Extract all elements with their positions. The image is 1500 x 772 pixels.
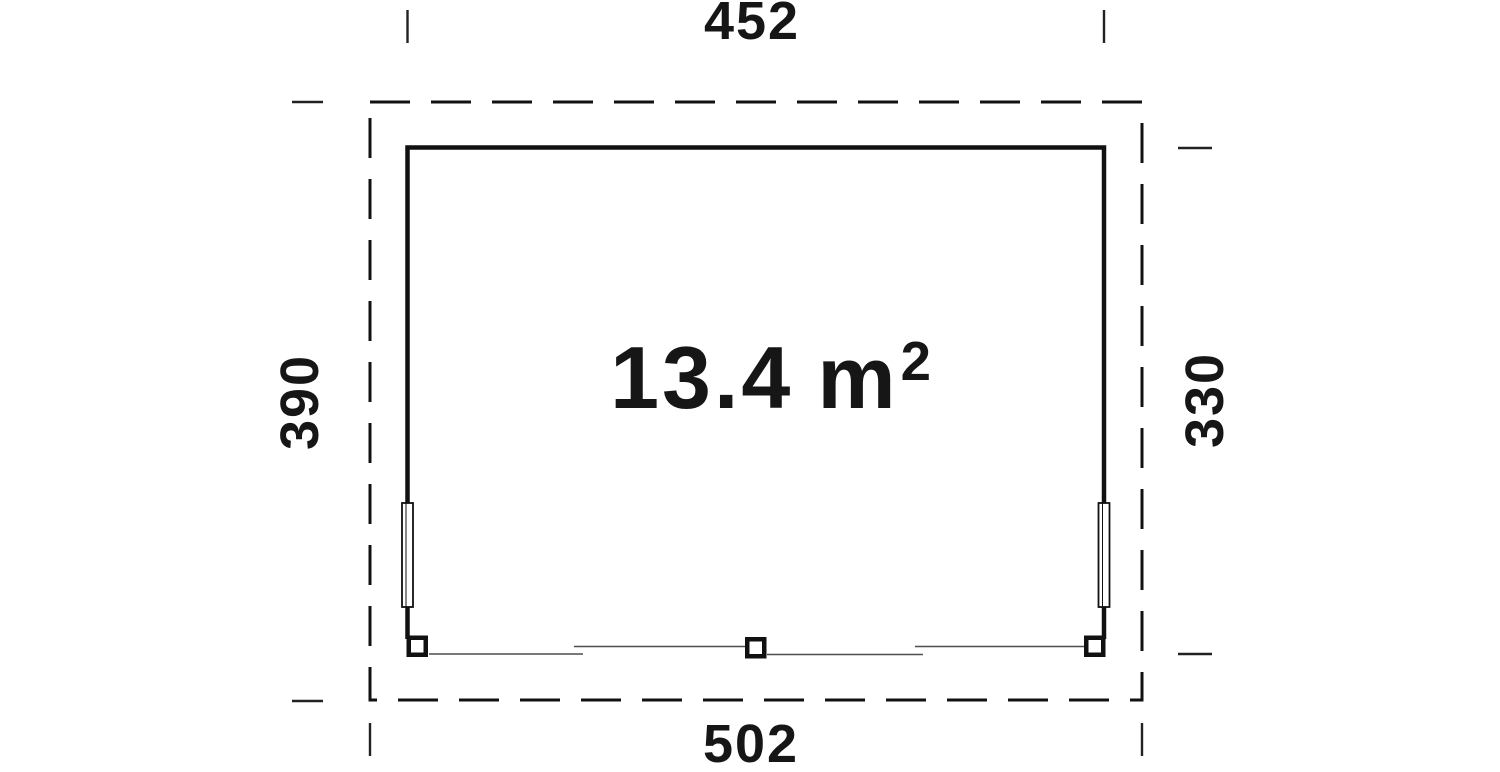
dimension-width-top: 452 — [704, 0, 800, 48]
area-unit: m — [817, 328, 898, 427]
dimension-width-bottom: 502 — [703, 717, 799, 771]
corner-post-right — [1086, 638, 1103, 655]
floor-plan-canvas: 452 502 390 330 13.4m2 — [0, 0, 1500, 772]
area-value: 13.4 — [610, 328, 793, 427]
post-middle — [747, 639, 764, 656]
wall-outline — [408, 148, 1105, 504]
dimension-depth-right: 330 — [1178, 352, 1232, 448]
area-exponent: 2 — [901, 331, 934, 392]
window-right — [1099, 503, 1110, 607]
area-label: 13.4m2 — [610, 334, 934, 422]
corner-post-left — [409, 638, 426, 655]
dimension-depth-left: 390 — [273, 354, 327, 450]
window-left — [402, 503, 413, 607]
